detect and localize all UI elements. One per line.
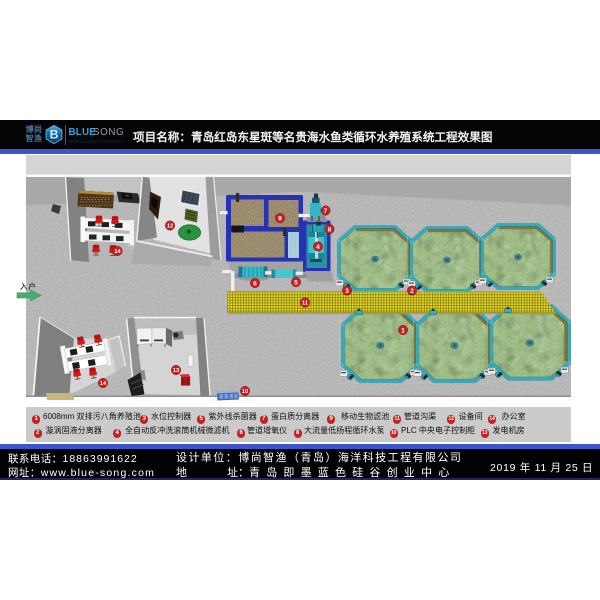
svg-text:入户: 入户 bbox=[20, 282, 37, 291]
svg-text:9: 9 bbox=[278, 215, 282, 222]
svg-text:4: 4 bbox=[316, 244, 320, 251]
svg-text:11: 11 bbox=[302, 301, 308, 307]
svg-text:B: B bbox=[50, 128, 59, 142]
svg-text:3: 3 bbox=[345, 288, 349, 295]
svg-text:14: 14 bbox=[114, 249, 121, 255]
svg-text:7: 7 bbox=[324, 208, 328, 215]
svg-text:2: 2 bbox=[410, 288, 414, 295]
svg-text:8: 8 bbox=[328, 226, 332, 233]
svg-text:1: 1 bbox=[401, 327, 405, 334]
svg-text:13: 13 bbox=[173, 368, 179, 374]
svg-text:6: 6 bbox=[253, 280, 257, 287]
svg-text:10: 10 bbox=[242, 389, 248, 395]
svg-text:14: 14 bbox=[100, 381, 107, 387]
svg-text:12: 12 bbox=[167, 224, 173, 230]
svg-text:5: 5 bbox=[294, 279, 298, 286]
